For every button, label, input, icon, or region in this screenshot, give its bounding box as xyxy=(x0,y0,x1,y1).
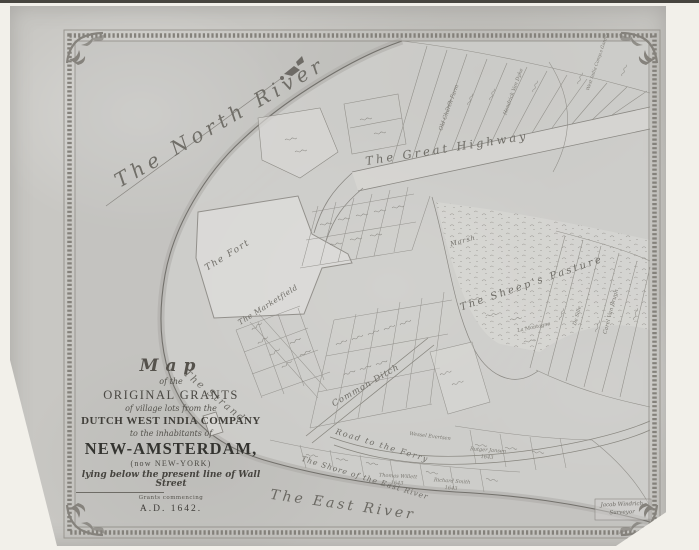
parcel-label: Old Church Farm xyxy=(439,84,461,131)
title-company: DUTCH WEST INDIA COMPANY xyxy=(76,416,266,427)
title-cartouche: Map of the ORIGINAL GRANTS of village lo… xyxy=(76,358,266,517)
parcel-label: Carel Van Brugh xyxy=(603,289,620,335)
title-new-amsterdam: NEW-AMSTERDAM, xyxy=(76,441,266,458)
label-common-ditch: Common Ditch xyxy=(331,363,401,408)
title-wall-street-note: lying below the present line of Wall Str… xyxy=(76,471,266,489)
label-sheeps-pasture: The Sheep's Pasture xyxy=(459,255,605,314)
parcel-label: De Sille xyxy=(573,306,583,326)
title-village-lots: of village lots from the xyxy=(76,405,266,413)
label-north-river: The North River xyxy=(111,53,329,190)
title-grants-note: Grants commencing xyxy=(76,496,266,502)
label-marketfield: The Marketfield xyxy=(237,284,299,327)
title-map-word: Map xyxy=(76,358,266,375)
title-of-the: of the xyxy=(76,378,266,386)
parcel-label: 1643 xyxy=(480,455,493,461)
surveyor-signature: Jacob Windrich Surveyor xyxy=(600,500,643,518)
parcel-label: Wessel Evertsen xyxy=(409,432,451,442)
parcel-label: 1643 xyxy=(444,486,457,492)
parcel-label: 1643 xyxy=(391,481,404,487)
parcel-label: West India Comp.s Garden xyxy=(587,32,611,91)
label-east-river: The East River xyxy=(269,488,416,522)
scanned-map-photo: { "palette": { "paper_margin": "#f2f0ea"… xyxy=(0,0,699,550)
title-original-grants: ORIGINAL GRANTS xyxy=(76,389,266,402)
title-inhabitants: to the inhabitants of xyxy=(76,430,266,438)
title-new-york: (now NEW-YORK) xyxy=(76,460,266,468)
map-labels-layer: The North River The Great Highway The Sh… xyxy=(0,0,699,550)
parcel-label: La Montagne xyxy=(517,322,551,334)
title-divider-rule xyxy=(76,492,164,493)
label-marsh: Marsh xyxy=(450,234,477,247)
photo-top-edge xyxy=(0,0,699,3)
label-fort: The Fort xyxy=(204,239,252,274)
title-date: A.D. 1642. xyxy=(76,505,266,515)
label-great-highway: The Great Highway xyxy=(365,130,530,167)
signature-line2: Surveyor xyxy=(601,508,644,518)
parcel-label: Hendrick Van Dyke xyxy=(503,68,524,116)
